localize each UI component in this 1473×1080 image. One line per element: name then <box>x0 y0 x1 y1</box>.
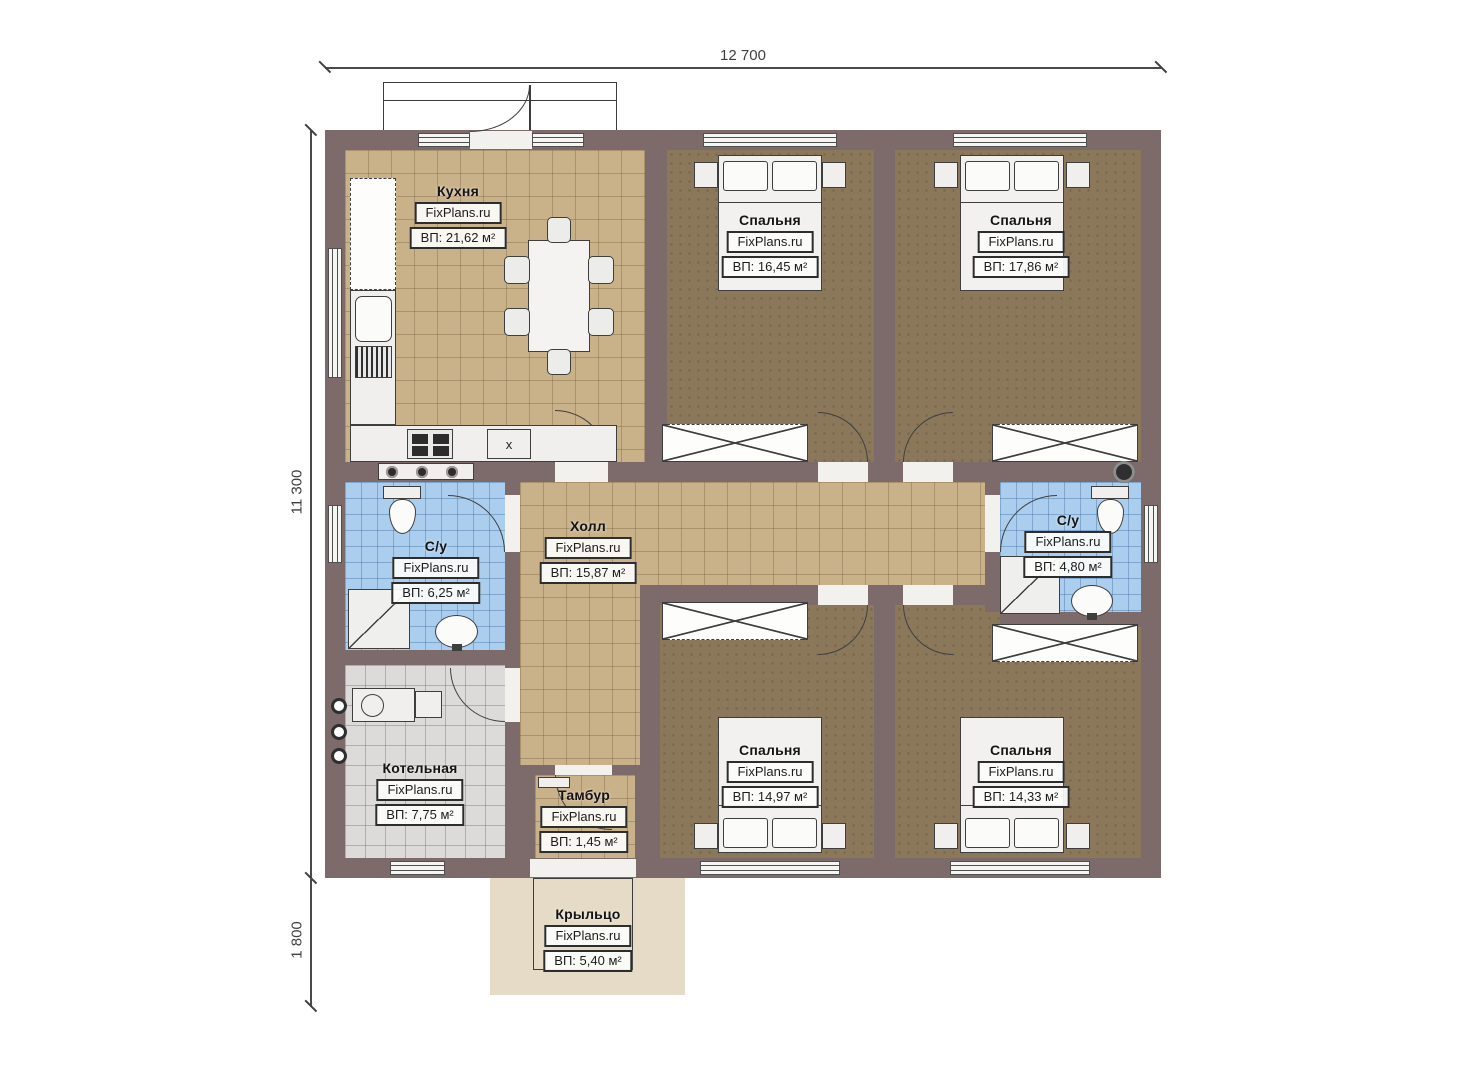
pillow <box>772 161 817 191</box>
kitchen-counter <box>350 425 617 462</box>
chair <box>504 308 530 336</box>
pillow <box>965 161 1010 191</box>
wall <box>345 650 520 665</box>
room-name: С/у <box>1057 512 1079 528</box>
watermark: FixPlans.ru <box>726 231 813 253</box>
watermark: FixPlans.ru <box>544 925 631 947</box>
chair <box>547 217 571 243</box>
dish-rack <box>355 346 392 378</box>
wall <box>520 765 535 858</box>
room-label-bedroom: Спальня FixPlans.ru ВП: 17,86 м² <box>973 212 1070 278</box>
appliance-mark: x <box>506 437 513 452</box>
gas-meter <box>331 748 347 764</box>
room-label-bathroom: С/у FixPlans.ru ВП: 4,80 м² <box>1023 512 1112 578</box>
pillow <box>772 818 817 848</box>
room-name: Тамбур <box>558 787 610 803</box>
door-opening <box>505 668 520 722</box>
room-label-hall: Холл FixPlans.ru ВП: 15,87 м² <box>540 518 637 584</box>
boiler-unit <box>352 688 415 722</box>
room-label-bedroom: Спальня FixPlans.ru ВП: 16,45 м² <box>722 212 819 278</box>
room-name: Холл <box>570 518 606 534</box>
wall <box>874 150 895 462</box>
door-opening <box>505 495 520 552</box>
watermark: FixPlans.ru <box>414 202 501 224</box>
window <box>950 861 1090 875</box>
gas-meter <box>331 698 347 714</box>
nightstand <box>934 823 958 849</box>
dimension-porch-height: 1 800 <box>289 921 306 959</box>
room-area: ВП: 14,97 м² <box>722 786 819 808</box>
room-area: ВП: 15,87 м² <box>540 562 637 584</box>
dimension-line-left <box>310 130 312 878</box>
watermark: FixPlans.ru <box>392 557 479 579</box>
room-label-boiler: Котельная FixPlans.ru ВП: 7,75 м² <box>375 760 464 826</box>
pillow <box>723 161 768 191</box>
watermark: FixPlans.ru <box>726 761 813 783</box>
pillow <box>965 818 1010 848</box>
nightstand <box>822 162 846 188</box>
room-area: ВП: 17,86 м² <box>973 256 1070 278</box>
room-name: Крыльцо <box>555 906 620 922</box>
window <box>390 861 445 875</box>
door-opening <box>555 462 608 482</box>
pillow <box>723 818 768 848</box>
chair <box>547 349 571 375</box>
watermark: FixPlans.ru <box>540 806 627 828</box>
room-label-kitchen: Кухня FixPlans.ru ВП: 21,62 м² <box>410 183 507 249</box>
room-label-bedroom: Спальня FixPlans.ru ВП: 14,33 м² <box>973 742 1070 808</box>
wall <box>612 765 635 775</box>
room-area: ВП: 6,25 м² <box>391 582 480 604</box>
pillow <box>1014 161 1059 191</box>
wall <box>1141 150 1161 858</box>
chair <box>588 308 614 336</box>
nightstand <box>694 162 718 188</box>
wall <box>635 765 651 858</box>
watermark: FixPlans.ru <box>376 779 463 801</box>
stove <box>407 429 453 459</box>
floor-plan: 12 700 11 300 1 800 <box>0 0 1473 1080</box>
door-opening <box>903 585 953 605</box>
room-name: Котельная <box>382 760 457 776</box>
entrance-door-opening <box>530 859 636 877</box>
kitchen-upper-cabinets <box>350 178 396 290</box>
watermark: FixPlans.ru <box>1024 531 1111 553</box>
chair <box>504 256 530 284</box>
room-name: Спальня <box>990 742 1052 758</box>
stove-knob <box>446 466 458 478</box>
washbasin <box>1071 585 1113 617</box>
pillow <box>1014 818 1059 848</box>
washbasin <box>435 615 478 648</box>
watermark: FixPlans.ru <box>977 761 1064 783</box>
room-name: Спальня <box>739 212 801 228</box>
window <box>532 133 584 147</box>
window <box>418 133 470 147</box>
wardrobe <box>662 424 808 462</box>
room-area: ВП: 4,80 м² <box>1023 556 1112 578</box>
door-opening <box>818 585 868 605</box>
room-area: ВП: 7,75 м² <box>375 804 464 826</box>
window <box>328 248 342 378</box>
room-name: Спальня <box>990 212 1052 228</box>
nightstand <box>934 162 958 188</box>
wardrobe <box>662 602 808 640</box>
wall <box>645 150 667 462</box>
gas-meter <box>331 724 347 740</box>
window <box>703 133 837 147</box>
nightstand <box>1066 162 1090 188</box>
room-label-bedroom: Спальня FixPlans.ru ВП: 14,97 м² <box>722 742 819 808</box>
room-area: ВП: 1,45 м² <box>539 831 628 853</box>
wardrobe <box>992 424 1138 462</box>
room-name: Кухня <box>437 183 479 199</box>
stove-knob <box>386 466 398 478</box>
door-opening <box>470 131 532 149</box>
watermark: FixPlans.ru <box>977 231 1064 253</box>
water-heater <box>1113 461 1135 483</box>
dimension-line-porch <box>310 878 312 1006</box>
boiler-cabinet <box>415 691 442 718</box>
window <box>1144 505 1158 563</box>
door-opening <box>818 462 868 482</box>
dimension-width: 12 700 <box>720 47 766 64</box>
room-name: С/у <box>425 538 447 554</box>
room-label-porch: Крыльцо FixPlans.ru ВП: 5,40 м² <box>543 906 632 972</box>
kitchen-appliance: x <box>487 429 531 459</box>
room-area: ВП: 5,40 м² <box>543 950 632 972</box>
dining-table <box>528 240 590 352</box>
nightstand <box>822 823 846 849</box>
stove-knob <box>416 466 428 478</box>
room-label-vestibule: Тамбур FixPlans.ru ВП: 1,45 м² <box>539 787 628 853</box>
dimension-line-top <box>325 67 1161 69</box>
toilet-tank <box>1091 486 1129 499</box>
door-opening <box>985 495 1000 552</box>
window <box>700 861 840 875</box>
nightstand <box>694 823 718 849</box>
kitchen-sink <box>355 296 392 342</box>
room-area: ВП: 21,62 м² <box>410 227 507 249</box>
toilet-tank <box>383 486 421 499</box>
door-opening <box>903 462 953 482</box>
wardrobe <box>992 624 1138 662</box>
nightstand <box>1066 823 1090 849</box>
room-area: ВП: 14,33 м² <box>973 786 1070 808</box>
window <box>328 505 342 563</box>
room-area: ВП: 16,45 м² <box>722 256 819 278</box>
window <box>953 133 1087 147</box>
room-name: Спальня <box>739 742 801 758</box>
watermark: FixPlans.ru <box>544 537 631 559</box>
dimension-height: 11 300 <box>289 470 306 515</box>
wall <box>874 585 895 858</box>
chair <box>588 256 614 284</box>
room-label-bathroom: С/у FixPlans.ru ВП: 6,25 м² <box>391 538 480 604</box>
wall <box>535 765 555 775</box>
door-opening <box>555 765 612 775</box>
